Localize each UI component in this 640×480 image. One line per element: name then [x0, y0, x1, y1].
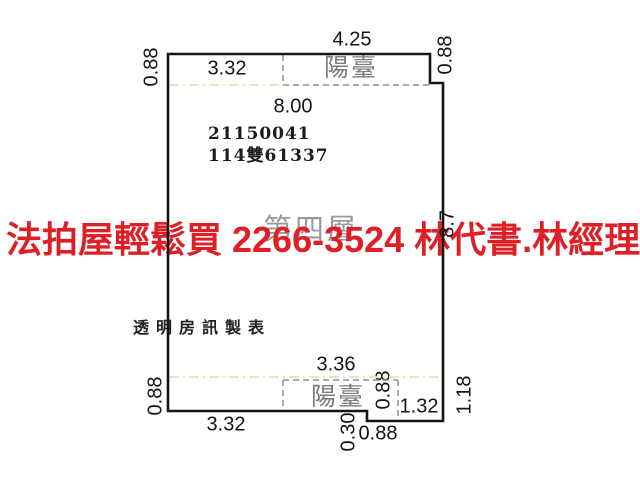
dim-bottom-side-left: 0.88 [145, 377, 168, 416]
maker-label: 透明房訊製表 [133, 314, 271, 338]
dim-top-side-left: 0.88 [141, 48, 164, 87]
dim-balcony-side: 0.88 [373, 371, 396, 410]
balcony-top-label: 陽臺 [324, 48, 378, 84]
dim-bottom-width: 3.32 [207, 414, 246, 437]
watermark-text: 法拍屋輕鬆買 2266-3524 林代書.林經理 [6, 211, 640, 263]
registration-number: 114雙61337 [208, 141, 329, 166]
floor-plan-page: 4.25 0.88 0.88 3.32 陽臺 8.00 21150041 114… [0, 0, 640, 480]
dim-interior-width: 8.00 [274, 96, 313, 119]
balcony-bottom-label: 陽臺 [311, 377, 365, 413]
dim-step-height: 0.30 [338, 413, 361, 452]
dim-top-side-right: 0.88 [435, 36, 458, 75]
dim-bottom-balcony-width: 3.36 [317, 354, 356, 377]
dim-step-width: 0.88 [359, 423, 398, 446]
dim-bottom-side-right: 1.18 [454, 376, 477, 415]
dim-right-height: 8.7 [437, 210, 460, 238]
dim-top-inner-width: 3.32 [208, 58, 247, 81]
dim-bottom-right-width: 1.32 [400, 396, 439, 419]
